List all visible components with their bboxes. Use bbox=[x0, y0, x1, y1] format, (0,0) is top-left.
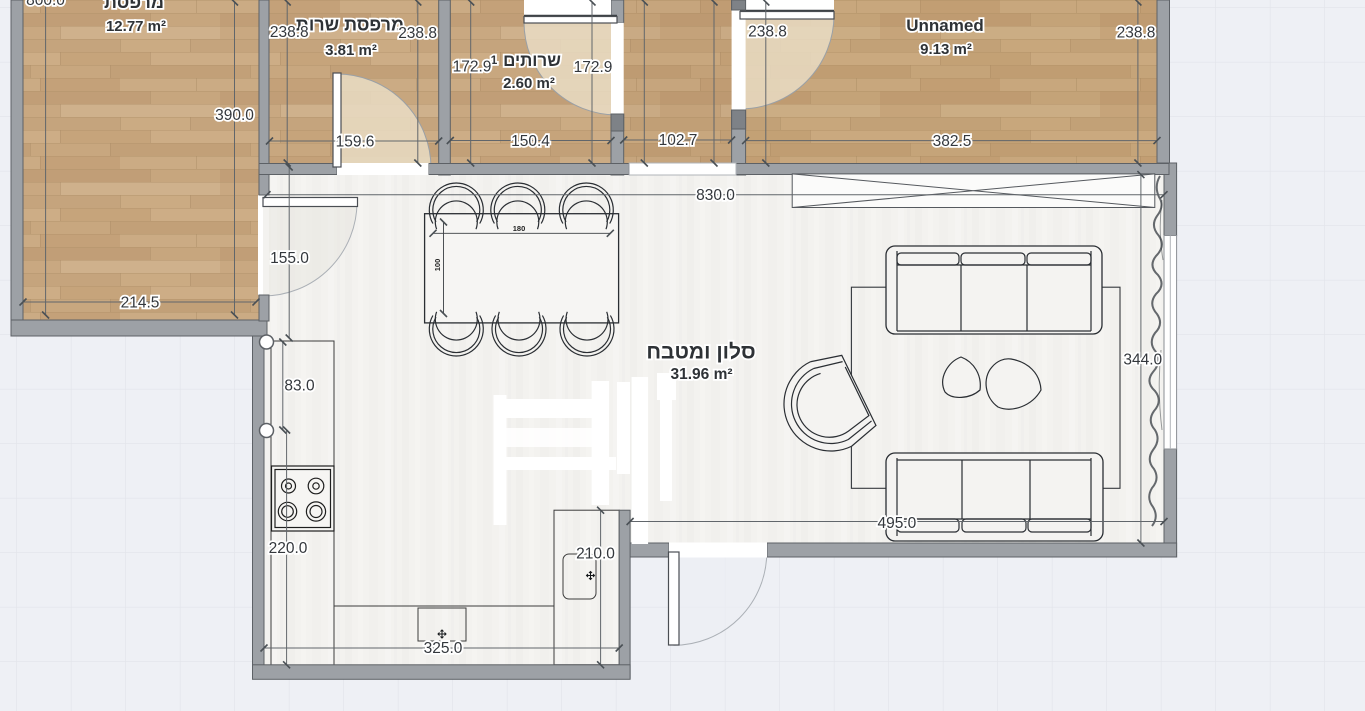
svg-text:12.77 m²: 12.77 m² bbox=[106, 18, 166, 35]
svg-text:344.0: 344.0 bbox=[1123, 352, 1162, 369]
svg-text:Unnamed: Unnamed bbox=[906, 16, 983, 35]
svg-text:495.0: 495.0 bbox=[878, 515, 917, 532]
svg-text:159.6: 159.6 bbox=[336, 134, 375, 151]
svg-text:214.5: 214.5 bbox=[121, 295, 160, 312]
svg-text:172.9: 172.9 bbox=[574, 59, 613, 76]
svg-text:1: 1 bbox=[491, 53, 498, 67]
svg-text:238.8: 238.8 bbox=[748, 24, 787, 41]
svg-text:155.0: 155.0 bbox=[270, 250, 309, 267]
svg-text:מרפסת שרות: מרפסת שרות bbox=[296, 15, 404, 35]
svg-text:238.8: 238.8 bbox=[1117, 25, 1156, 42]
svg-text:210.0: 210.0 bbox=[576, 546, 615, 563]
svg-text:180: 180 bbox=[513, 224, 526, 233]
svg-text:9.13 m²: 9.13 m² bbox=[920, 41, 972, 58]
svg-text:3.81 m²: 3.81 m² bbox=[325, 42, 377, 59]
svg-text:325.0: 325.0 bbox=[424, 640, 463, 657]
svg-text:31.96 m²: 31.96 m² bbox=[670, 366, 732, 383]
svg-text:382.5: 382.5 bbox=[933, 133, 972, 150]
svg-text:סלון ומטבח: סלון ומטבח bbox=[646, 341, 755, 364]
svg-text:800.0: 800.0 bbox=[26, 0, 65, 9]
svg-text:390.0: 390.0 bbox=[215, 107, 254, 124]
svg-text:150.4: 150.4 bbox=[511, 133, 550, 150]
svg-text:830.0: 830.0 bbox=[696, 187, 735, 204]
svg-text:172.9: 172.9 bbox=[453, 59, 492, 76]
svg-text:220.0: 220.0 bbox=[269, 540, 308, 557]
svg-text:100: 100 bbox=[433, 259, 442, 272]
svg-text:מרפסת: מרפסת bbox=[104, 0, 164, 12]
svg-text:שרותים: שרותים bbox=[503, 51, 561, 70]
svg-text:238.8: 238.8 bbox=[398, 25, 437, 42]
svg-text:2.60 m²: 2.60 m² bbox=[503, 75, 555, 92]
svg-text:83.0: 83.0 bbox=[284, 378, 315, 395]
svg-text:102.7: 102.7 bbox=[659, 132, 698, 149]
svg-text:238.8: 238.8 bbox=[270, 24, 309, 41]
